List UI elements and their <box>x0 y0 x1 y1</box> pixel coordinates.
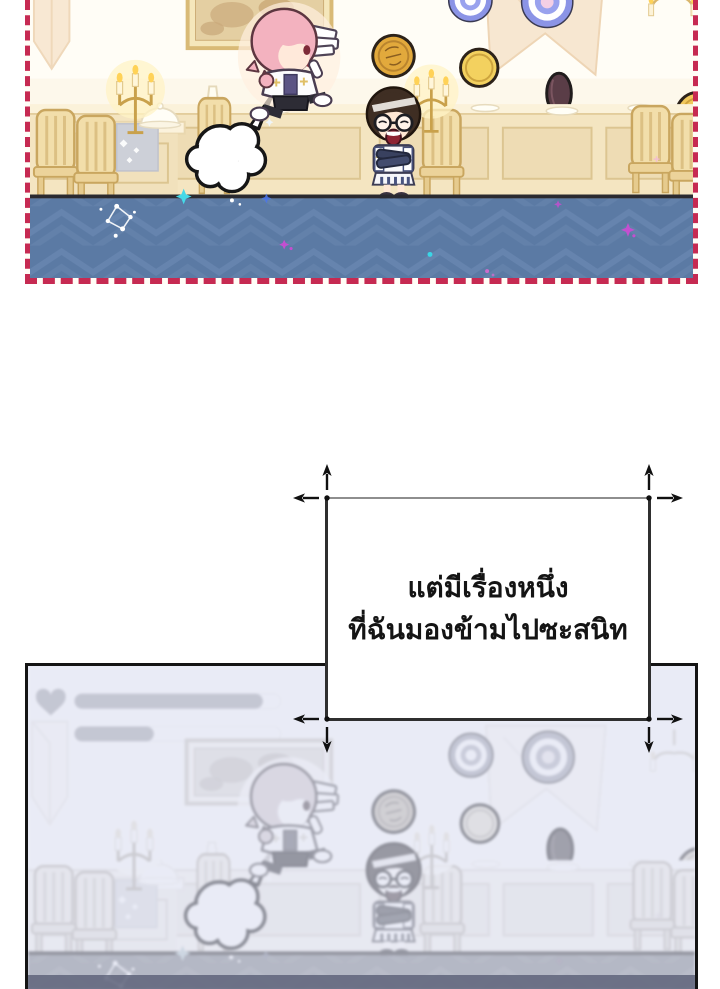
panel-top-scene <box>25 0 698 284</box>
comic-page: แต่มีเรื่องหนึ่ง ที่ฉันมองข้ามไปซะสนิท <box>0 0 720 989</box>
faded-floor-strip <box>28 975 695 989</box>
narration-line-1: แต่มีเรื่องหนึ่ง <box>348 567 628 609</box>
crop-mark-top-right <box>611 460 687 536</box>
crop-mark-top-left <box>289 460 365 536</box>
narration-box: แต่มีเรื่องหนึ่ง ที่ฉันมองข้ามไปซะสนิท <box>325 497 651 721</box>
narration-text: แต่มีเรื่องหนึ่ง ที่ฉันมองข้ามไปซะสนิท <box>348 567 628 651</box>
banquet-scene-color <box>30 0 693 278</box>
narration-line-2: ที่ฉันมองข้ามไปซะสนิท <box>348 609 628 651</box>
